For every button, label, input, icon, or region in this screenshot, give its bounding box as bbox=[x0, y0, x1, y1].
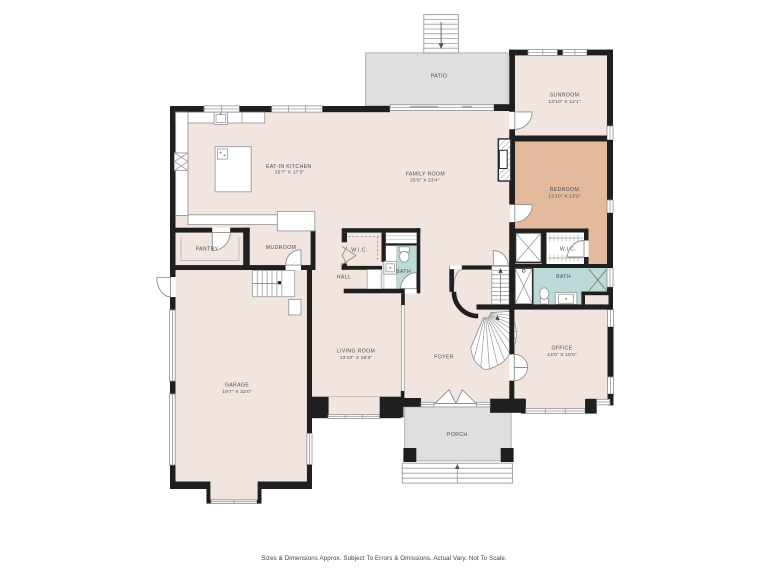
svg-text:14'0" X 15'0": 14'0" X 15'0" bbox=[547, 352, 577, 358]
svg-text:25'7" X 17'3": 25'7" X 17'3" bbox=[275, 170, 305, 176]
svg-text:EAT-IN KITCHEN: EAT-IN KITCHEN bbox=[266, 164, 311, 170]
svg-text:19'7" X 32'0": 19'7" X 32'0" bbox=[222, 389, 252, 395]
svg-text:Sizes & Dimensions Approx. Sub: Sizes & Dimensions Approx. Subject To Er… bbox=[261, 555, 507, 562]
svg-text:FAMILY ROOM: FAMILY ROOM bbox=[406, 171, 445, 177]
svg-text:BATH: BATH bbox=[396, 269, 411, 275]
svg-text:HALL: HALL bbox=[337, 275, 351, 281]
svg-text:13'10" X 16'3": 13'10" X 16'3" bbox=[340, 355, 373, 361]
svg-text:FOYER: FOYER bbox=[434, 354, 454, 360]
svg-text:W.I.C.: W.I.C. bbox=[560, 247, 576, 253]
svg-text:BEDROOM: BEDROOM bbox=[550, 187, 579, 193]
svg-text:GARAGE: GARAGE bbox=[225, 383, 249, 389]
svg-text:25'0" X 23'4": 25'0" X 23'4" bbox=[410, 178, 440, 184]
svg-text:OFFICE: OFFICE bbox=[551, 345, 572, 351]
svg-text:SUNROOM: SUNROOM bbox=[550, 93, 580, 99]
svg-text:13'10" X 12'1": 13'10" X 12'1" bbox=[548, 99, 581, 105]
svg-text:LIVING ROOM: LIVING ROOM bbox=[337, 348, 375, 354]
svg-text:PATIO: PATIO bbox=[431, 73, 448, 79]
svg-text:PORCH: PORCH bbox=[447, 432, 467, 438]
svg-text:W.I.C.: W.I.C. bbox=[351, 248, 367, 254]
svg-text:PANTRY: PANTRY bbox=[196, 246, 219, 252]
svg-text:13'10" X 13'2": 13'10" X 13'2" bbox=[548, 194, 581, 200]
svg-text:MUDROOM: MUDROOM bbox=[266, 245, 296, 251]
svg-text:BATH: BATH bbox=[556, 274, 571, 280]
